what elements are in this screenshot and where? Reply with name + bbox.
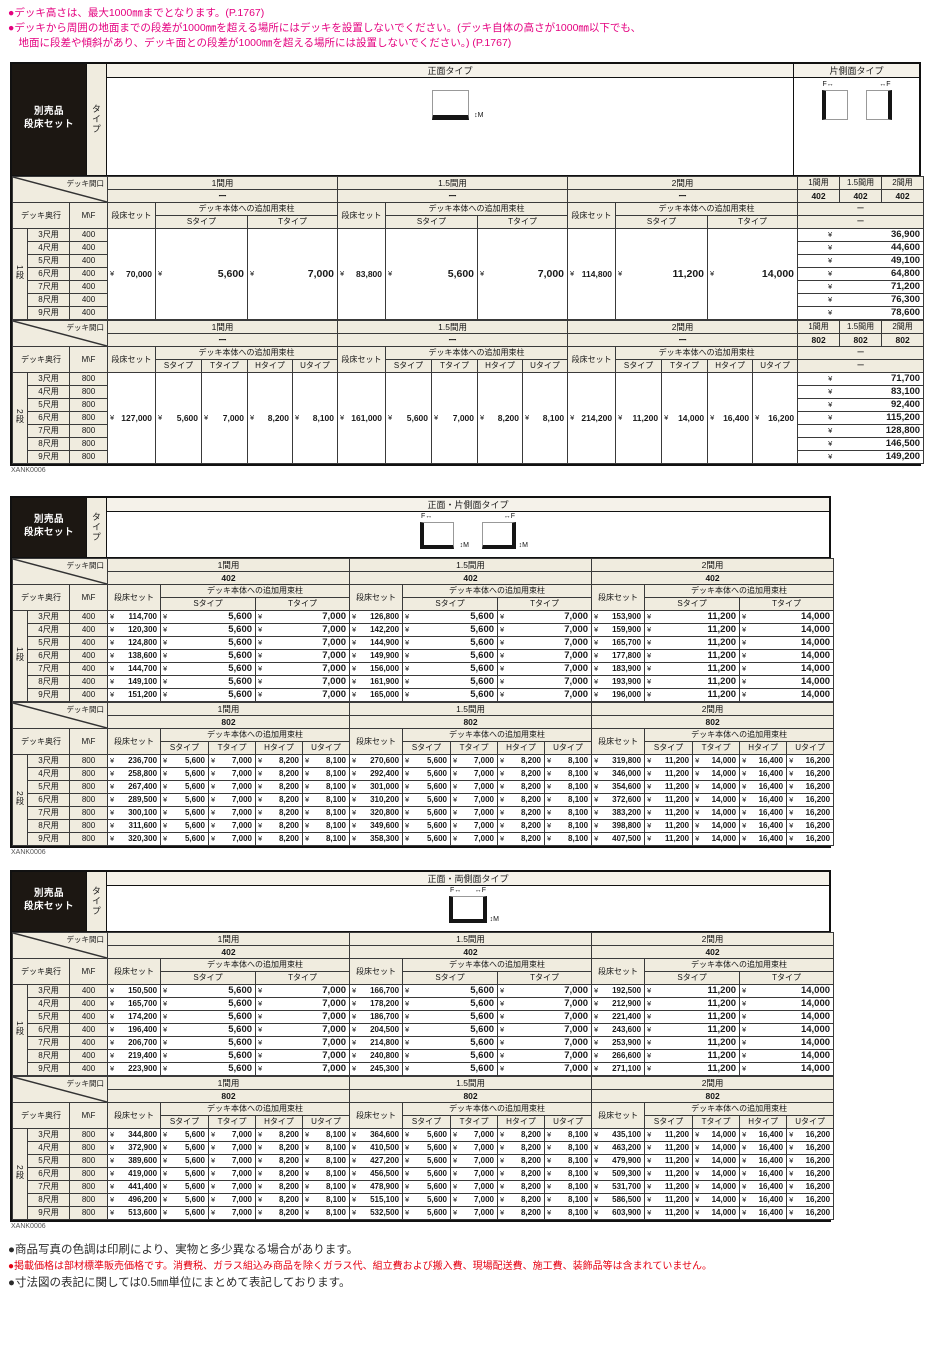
yen-sign: ¥: [740, 625, 746, 634]
price-value: 16,200: [806, 1156, 833, 1165]
type-price-cell: ¥7,000: [256, 636, 350, 649]
price-value: 14,000: [712, 795, 739, 804]
yen-sign: ¥: [403, 756, 409, 765]
mf-value-cell: 800: [70, 398, 108, 411]
set-price-cell: ¥513,600: [108, 1206, 161, 1219]
yen-sign: ¥: [350, 651, 356, 660]
stage-cell: 2段: [13, 1128, 28, 1219]
yen-sign: ¥: [592, 756, 598, 765]
set-header: 段床セット: [338, 346, 386, 372]
price-cell-content: ¥14,000: [740, 611, 833, 622]
yen-sign: ¥: [209, 821, 215, 830]
type-price-cell: ¥5,600: [403, 1010, 498, 1023]
type-price-cell: ¥7,000: [498, 610, 592, 623]
price-cell-content: ¥7,000: [498, 624, 591, 635]
yen-sign: ¥: [256, 808, 262, 817]
price-cell-content: ¥16,400: [740, 1182, 786, 1191]
yen-sign: ¥: [161, 999, 167, 1008]
type-price-cell: ¥16,400: [740, 1167, 787, 1180]
price-value: 14,000: [801, 676, 833, 687]
add-post-header: デッキ本体への追加用束柱: [645, 728, 834, 741]
price-cell-content: ¥7,000: [256, 1037, 349, 1048]
price-cell-content: ¥14,000: [662, 413, 707, 423]
price-cell-content: ¥11,200: [645, 663, 739, 674]
price-cell-content: ¥16,200: [787, 1208, 833, 1217]
price-value: 8,200: [521, 782, 544, 791]
data-row: 6尺用400¥138,600¥5,600¥7,000¥149,900¥5,600…: [13, 649, 834, 662]
price-value: 92,400: [891, 399, 923, 410]
side-price-cell: ¥76,300: [798, 293, 924, 306]
add-post-header: デッキ本体への追加用束柱: [161, 1102, 350, 1115]
main-type-area: 正面タイプ↕M: [107, 64, 793, 175]
price-value: 126,800: [370, 612, 402, 621]
group-header: 1.5間用: [350, 932, 592, 945]
price-value: 149,200: [886, 451, 923, 462]
price-cell-content: ¥8,100: [293, 413, 337, 423]
price-value: 7,000: [322, 1011, 349, 1022]
yen-sign: ¥: [350, 1182, 356, 1191]
type-price-cell: ¥7,000: [256, 1062, 350, 1075]
price-cell-content: ¥71,200: [798, 281, 923, 292]
yen-sign: ¥: [645, 638, 651, 647]
type-price-cell: ¥7,000: [498, 636, 592, 649]
mf-value-cell: 800: [70, 819, 108, 832]
price-value: 120,300: [128, 625, 160, 634]
yen-sign: ¥: [498, 690, 504, 699]
set-price-cell: ¥478,900: [350, 1180, 403, 1193]
price-cell-content: ¥358,300: [350, 834, 402, 843]
depth-cell: 4尺用: [28, 1141, 70, 1154]
price-cell-content: ¥156,000: [350, 664, 402, 673]
price-cell-content: ¥5,600: [403, 834, 450, 843]
yen-sign: ¥: [256, 1195, 262, 1204]
set-price-cell: ¥531,700: [592, 1180, 645, 1193]
price-value: 8,200: [279, 808, 302, 817]
price-value: 358,300: [370, 834, 402, 843]
type-price-cell: ¥5,600: [403, 780, 451, 793]
price-cell-content: ¥115,200: [798, 412, 923, 423]
price-cell-content: ¥149,200: [798, 451, 923, 462]
type-price-cell: ¥7,000: [209, 1128, 256, 1141]
price-cell-content: ¥253,900: [592, 1038, 644, 1047]
yen-sign: ¥: [451, 795, 457, 804]
type-price-cell: ¥14,000: [693, 1206, 740, 1219]
price-cell-content: ¥8,100: [303, 834, 349, 843]
type-price-cell: ¥8,200: [256, 1154, 303, 1167]
price-value: 372,900: [128, 1143, 160, 1152]
yen-sign: ¥: [161, 1038, 167, 1047]
footer-note-photo-color: ●商品写真の色調は印刷により、実物と多少異なる場合があります。: [8, 1242, 929, 1260]
price-cell-content: ¥8,100: [303, 1130, 349, 1139]
price-value: 138,600: [128, 651, 160, 660]
add-post-header: デッキ本体への追加用束柱: [161, 958, 350, 971]
price-cell-content: ¥456,500: [350, 1169, 402, 1178]
price-cell-content: ¥11,200: [645, 689, 739, 700]
price-cell-content: ¥5,600: [161, 1130, 208, 1139]
group-header: 1間用: [108, 932, 350, 945]
price-value: 7,000: [474, 795, 497, 804]
set-price-cell: ¥320,300: [108, 832, 161, 845]
side-price-cell: ¥115,200: [798, 411, 924, 424]
type-price-cell: ¥16,200: [787, 832, 834, 845]
price-value: 8,100: [326, 1195, 349, 1204]
price-cell-content: ¥161,900: [350, 677, 402, 686]
set-price-cell: ¥165,700: [592, 636, 645, 649]
yen-sign: ¥: [545, 821, 551, 830]
yen-sign: ¥: [645, 1064, 651, 1073]
side-group-header: 1.5間用: [840, 320, 882, 333]
price-value: 5,600: [185, 1208, 208, 1217]
price-value: 5,600: [427, 756, 450, 765]
yen-sign: ¥: [645, 834, 651, 843]
price-value: 7,000: [308, 268, 337, 280]
yen-sign: ¥: [523, 413, 529, 422]
price-value: 8,100: [326, 1143, 349, 1152]
price-value: 7,000: [474, 1169, 497, 1178]
price-value: 344,800: [128, 1130, 160, 1139]
price-cell-content: ¥398,800: [592, 821, 644, 830]
type-col-header: Hタイプ: [256, 1115, 303, 1128]
type-price-cell: ¥7,000: [209, 767, 256, 780]
price-value: 14,000: [801, 985, 833, 996]
side-size-cell: 402: [798, 189, 840, 202]
price-value: 5,600: [470, 637, 497, 648]
price-value: 5,600: [228, 985, 255, 996]
data-row: 8尺用800¥311,600¥5,600¥7,000¥8,200¥8,100¥3…: [13, 819, 834, 832]
yen-sign: ¥: [498, 638, 504, 647]
price-cell-content: ¥8,100: [545, 769, 591, 778]
type-price-cell: ¥16,400: [740, 793, 787, 806]
deck-type-diagram: F↔↕M↔F↕M: [420, 522, 516, 549]
type-price-cell: ¥8,100: [303, 832, 350, 845]
price-value: 8,200: [521, 1156, 544, 1165]
set-price-cell: ¥354,600: [592, 780, 645, 793]
price-cell-content: ¥7,000: [498, 676, 591, 687]
type-price-cell: ¥8,100: [545, 1154, 592, 1167]
type-price-cell: ¥8,100: [303, 1128, 350, 1141]
type-price-cell: ¥11,200: [645, 662, 740, 675]
type-price-cell: ¥7,000: [256, 649, 350, 662]
type-col-header: Sタイプ: [161, 971, 256, 984]
yen-sign: ¥: [498, 1051, 504, 1060]
price-value: 7,000: [474, 1182, 497, 1191]
type-col-header: Sタイプ: [403, 597, 498, 610]
price-cell-content: ¥8,200: [498, 782, 544, 791]
price-cell-content: ¥11,200: [645, 769, 692, 778]
price-value: 603,900: [612, 1208, 644, 1217]
type-price-cell: ¥11,200: [645, 1141, 693, 1154]
type-price-cell: ¥11,200: [645, 984, 740, 997]
price-cell-content: ¥11,200: [645, 795, 692, 804]
m-dimension-mark-icon: ↕M: [474, 112, 483, 119]
mf-value-cell: 800: [70, 1141, 108, 1154]
price-cell-content: ¥5,600: [161, 998, 255, 1009]
type-col-header: Tタイプ: [202, 359, 248, 372]
type-price-cell: ¥14,000: [708, 228, 798, 319]
depth-cell: 4尺用: [28, 767, 70, 780]
type-price-cell: ¥8,200: [256, 780, 303, 793]
type-price-cell: ¥8,200: [498, 1128, 545, 1141]
yen-sign: ¥: [350, 1195, 356, 1204]
group-header: 2間用: [592, 558, 834, 571]
yen-sign: ¥: [693, 1156, 699, 1165]
yen-sign: ¥: [451, 782, 457, 791]
price-cell-content: ¥8,200: [498, 834, 544, 843]
price-value: 115,200: [886, 412, 923, 423]
main-type-area: 正面・片側面タイプF↔↕M↔F↕M: [107, 498, 829, 557]
depth-header: デッキ奥行: [13, 346, 70, 372]
price-cell-content: ¥16,200: [787, 769, 833, 778]
price-cell-content: ¥5,600: [403, 1063, 497, 1074]
data-row: 1段3尺用400¥70,000¥5,600¥7,000¥83,800¥5,600…: [13, 228, 924, 241]
price-section-table: デッキ間口1間用1.5間用2間用402402402デッキ奥行M\F段床セットデッ…: [12, 558, 834, 702]
depth-cell: 7尺用: [28, 662, 70, 675]
set-price-cell: ¥156,000: [350, 662, 403, 675]
price-cell-content: ¥8,100: [303, 1208, 349, 1217]
deck-shape: F↔↕M: [420, 522, 454, 549]
price-cell-content: ¥8,200: [256, 1182, 302, 1191]
price-cell-content: ¥7,000: [209, 1169, 255, 1178]
price-cell-content: ¥7,000: [451, 1143, 497, 1152]
price-cell-content: ¥206,700: [108, 1038, 160, 1047]
header-row: デッキ奥行M\F段床セットデッキ本体への追加用束柱段床セットデッキ本体への追加用…: [13, 958, 834, 971]
price-value: 11,200: [707, 1037, 739, 1048]
price-value: 11,200: [672, 268, 707, 280]
yen-sign: ¥: [645, 769, 651, 778]
yen-sign: ¥: [209, 1143, 215, 1152]
yen-sign: ¥: [498, 1195, 504, 1204]
price-cell-content: ¥14,000: [693, 1156, 739, 1165]
yen-sign: ¥: [451, 756, 457, 765]
price-cell-content: ¥14,000: [740, 689, 833, 700]
price-value: 219,400: [128, 1051, 160, 1060]
price-value: 5,600: [185, 756, 208, 765]
type-price-cell: ¥5,600: [161, 1010, 256, 1023]
price-value: 14,000: [712, 1208, 739, 1217]
price-cell-content: ¥16,400: [740, 1169, 786, 1178]
mf-value-cell: 400: [70, 241, 108, 254]
yen-sign: ¥: [740, 1195, 746, 1204]
price-value: 8,100: [568, 756, 591, 765]
price-value: 8,200: [521, 1195, 544, 1204]
data-row: 9尺用400¥223,900¥5,600¥7,000¥245,300¥5,600…: [13, 1062, 834, 1075]
badge-text-line: 段床セット: [24, 119, 74, 132]
price-cell-content: ¥142,200: [350, 625, 402, 634]
yen-sign: ¥: [740, 986, 746, 995]
price-value: 8,100: [568, 795, 591, 804]
type-price-cell: ¥11,200: [645, 806, 693, 819]
price-cell-content: ¥8,100: [545, 756, 591, 765]
yen-sign: ¥: [787, 1169, 793, 1178]
price-tables-area: 別売品段床セットタイプ正面タイプ↕M片側面タイプF↔↔Fデッキ間口1間用1.5間…: [0, 62, 929, 1230]
set-price-cell: ¥114,800: [568, 228, 616, 319]
price-value: 5,600: [228, 650, 255, 661]
type-price-cell: ¥5,600: [161, 1036, 256, 1049]
group-header: 2間用: [568, 320, 798, 333]
set-price-cell: ¥496,200: [108, 1193, 161, 1206]
set-price-cell: ¥214,800: [350, 1036, 403, 1049]
price-cell-content: ¥16,400: [740, 834, 786, 843]
group-header: 1.5間用: [338, 320, 568, 333]
type-price-cell: ¥7,000: [209, 1180, 256, 1193]
set-header: 段床セット: [108, 202, 156, 228]
yen-sign: ¥: [161, 1143, 167, 1152]
price-value: 513,600: [128, 1208, 160, 1217]
add-post-header: デッキ本体への追加用束柱: [161, 584, 350, 597]
price-cell-content: ¥7,000: [451, 821, 497, 830]
price-cell-content: ¥7,000: [478, 268, 567, 280]
price-value: 71,700: [891, 373, 923, 384]
price-cell-content: ¥7,000: [498, 1037, 591, 1048]
price-cell-content: ¥14,000: [693, 769, 739, 778]
yen-sign: ¥: [787, 1130, 793, 1139]
side-dash-cell: ー: [798, 202, 924, 215]
price-cell-content: ¥7,000: [498, 611, 591, 622]
yen-sign: ¥: [303, 782, 309, 791]
yen-sign: ¥: [256, 1038, 262, 1047]
type-price-cell: ¥14,000: [740, 1049, 834, 1062]
m-dimension-mark-icon: ↕M: [460, 542, 469, 549]
type-price-cell: ¥8,100: [545, 832, 592, 845]
yen-sign: ¥: [616, 413, 622, 422]
depth-cell: 7尺用: [28, 1036, 70, 1049]
price-cell-content: ¥16,400: [740, 795, 786, 804]
add-post-header: デッキ本体への追加用束柱: [616, 202, 798, 215]
type-price-cell: ¥16,400: [740, 806, 787, 819]
price-cell-content: ¥407,500: [592, 834, 644, 843]
type-price-cell: ¥11,200: [645, 780, 693, 793]
type-price-cell: ¥8,200: [256, 767, 303, 780]
type-price-cell: ¥8,100: [545, 780, 592, 793]
price-cell-content: ¥16,200: [787, 1195, 833, 1204]
price-cell-content: ¥7,000: [256, 663, 349, 674]
price-value: 165,700: [128, 999, 160, 1008]
group-size-cell: 802: [108, 715, 350, 728]
type-col-header: Tタイプ: [662, 359, 708, 372]
price-cell-content: ¥146,500: [798, 438, 923, 449]
price-cell-content: ¥7,000: [498, 1011, 591, 1022]
header-row: デッキ奥行M\F段床セットデッキ本体への追加用束柱段床セットデッキ本体への追加用…: [13, 728, 834, 741]
depth-cell: 3尺用: [28, 984, 70, 997]
price-value: 11,200: [665, 834, 692, 843]
yen-sign: ¥: [693, 1195, 699, 1204]
yen-sign: ¥: [645, 690, 651, 699]
besshin-badge: 別売品段床セット: [12, 498, 86, 557]
data-row: 5尺用400¥124,800¥5,600¥7,000¥144,900¥5,600…: [13, 636, 834, 649]
yen-sign: ¥: [256, 782, 262, 791]
depth-cell: 4尺用: [28, 385, 70, 398]
yen-sign: ¥: [645, 821, 651, 830]
side-group-header: 1.5間用: [840, 176, 882, 189]
price-value: 11,200: [707, 689, 739, 700]
price-value: 16,400: [759, 834, 786, 843]
price-value: 76,300: [891, 294, 923, 305]
price-cell-content: ¥11,200: [645, 1143, 692, 1152]
group-size-cell: 802: [592, 715, 834, 728]
yen-sign: ¥: [248, 269, 254, 278]
type-price-cell: ¥14,000: [740, 688, 834, 701]
yen-sign: ¥: [708, 413, 714, 422]
group-header: 2間用: [568, 176, 798, 189]
price-value: 7,000: [322, 1024, 349, 1035]
type-col-header: Tタイプ: [498, 597, 592, 610]
price-value: 16,200: [806, 834, 833, 843]
group-header: 1間用: [108, 176, 338, 189]
type-price-cell: ¥5,600: [161, 806, 209, 819]
yen-sign: ¥: [798, 308, 832, 317]
yen-sign: ¥: [451, 1195, 457, 1204]
set-price-cell: ¥144,900: [350, 636, 403, 649]
type-price-cell: ¥8,100: [303, 1193, 350, 1206]
type-col-header: Sタイプ: [156, 359, 202, 372]
yen-sign: ¥: [403, 1064, 409, 1073]
price-cell-content: ¥114,700: [108, 612, 160, 621]
stage-cell: 1段: [13, 610, 28, 701]
group-size-cell: 402: [350, 571, 592, 584]
price-cell-content: ¥586,500: [592, 1195, 644, 1204]
price-value: 398,800: [612, 821, 644, 830]
yen-sign: ¥: [798, 452, 832, 461]
yen-sign: ¥: [256, 1156, 262, 1165]
price-cell-content: ¥8,200: [498, 821, 544, 830]
price-value: 5,600: [228, 1024, 255, 1035]
f-dimension-mark-icon: F↔: [450, 887, 461, 894]
price-cell-content: ¥186,700: [350, 1012, 402, 1021]
data-row: 9尺用800¥320,300¥5,600¥7,000¥8,200¥8,100¥3…: [13, 832, 834, 845]
set-price-cell: ¥114,700: [108, 610, 161, 623]
set-price-cell: ¥603,900: [592, 1206, 645, 1219]
price-cell-content: ¥8,100: [545, 821, 591, 830]
yen-sign: ¥: [740, 1143, 746, 1152]
price-value: 7,000: [232, 1143, 255, 1152]
price-cell-content: ¥5,600: [403, 1037, 497, 1048]
group-size-cell: ー: [568, 333, 798, 346]
price-cell-content: ¥14,000: [740, 998, 833, 1009]
depth-cell: 5尺用: [28, 1154, 70, 1167]
price-cell-content: ¥5,600: [161, 795, 208, 804]
type-price-cell: ¥11,200: [645, 636, 740, 649]
type-price-cell: ¥11,200: [645, 793, 693, 806]
set-price-cell: ¥186,700: [350, 1010, 403, 1023]
yen-sign: ¥: [545, 1143, 551, 1152]
group-size-cell: 802: [350, 1089, 592, 1102]
price-cell-content: ¥8,100: [545, 1208, 591, 1217]
price-cell-content: ¥16,400: [740, 1195, 786, 1204]
yen-sign: ¥: [350, 1169, 356, 1178]
stage-cell: 1段: [13, 228, 28, 319]
price-value: 5,600: [185, 782, 208, 791]
type-price-cell: ¥7,000: [451, 832, 498, 845]
price-cell-content: ¥5,600: [161, 624, 255, 635]
badge-text-line: 段床セット: [24, 901, 74, 914]
price-cell-content: ¥5,600: [161, 769, 208, 778]
price-cell-content: ¥5,600: [161, 663, 255, 674]
price-cell-content: ¥5,600: [403, 1182, 450, 1191]
yen-sign: ¥: [161, 664, 167, 673]
set-price-cell: ¥383,200: [592, 806, 645, 819]
price-value: 16,200: [806, 1182, 833, 1191]
add-post-header: デッキ本体への追加用束柱: [161, 728, 350, 741]
set-price-cell: ¥240,800: [350, 1049, 403, 1062]
yen-sign: ¥: [403, 1169, 409, 1178]
depth-cell: 8尺用: [28, 1193, 70, 1206]
yen-sign: ¥: [645, 795, 651, 804]
price-cell-content: ¥7,000: [209, 756, 255, 765]
price-cell-content: ¥5,600: [403, 1011, 497, 1022]
yen-sign: ¥: [108, 1012, 114, 1021]
price-cell-content: ¥16,400: [740, 821, 786, 830]
price-cell-content: ¥7,000: [498, 998, 591, 1009]
